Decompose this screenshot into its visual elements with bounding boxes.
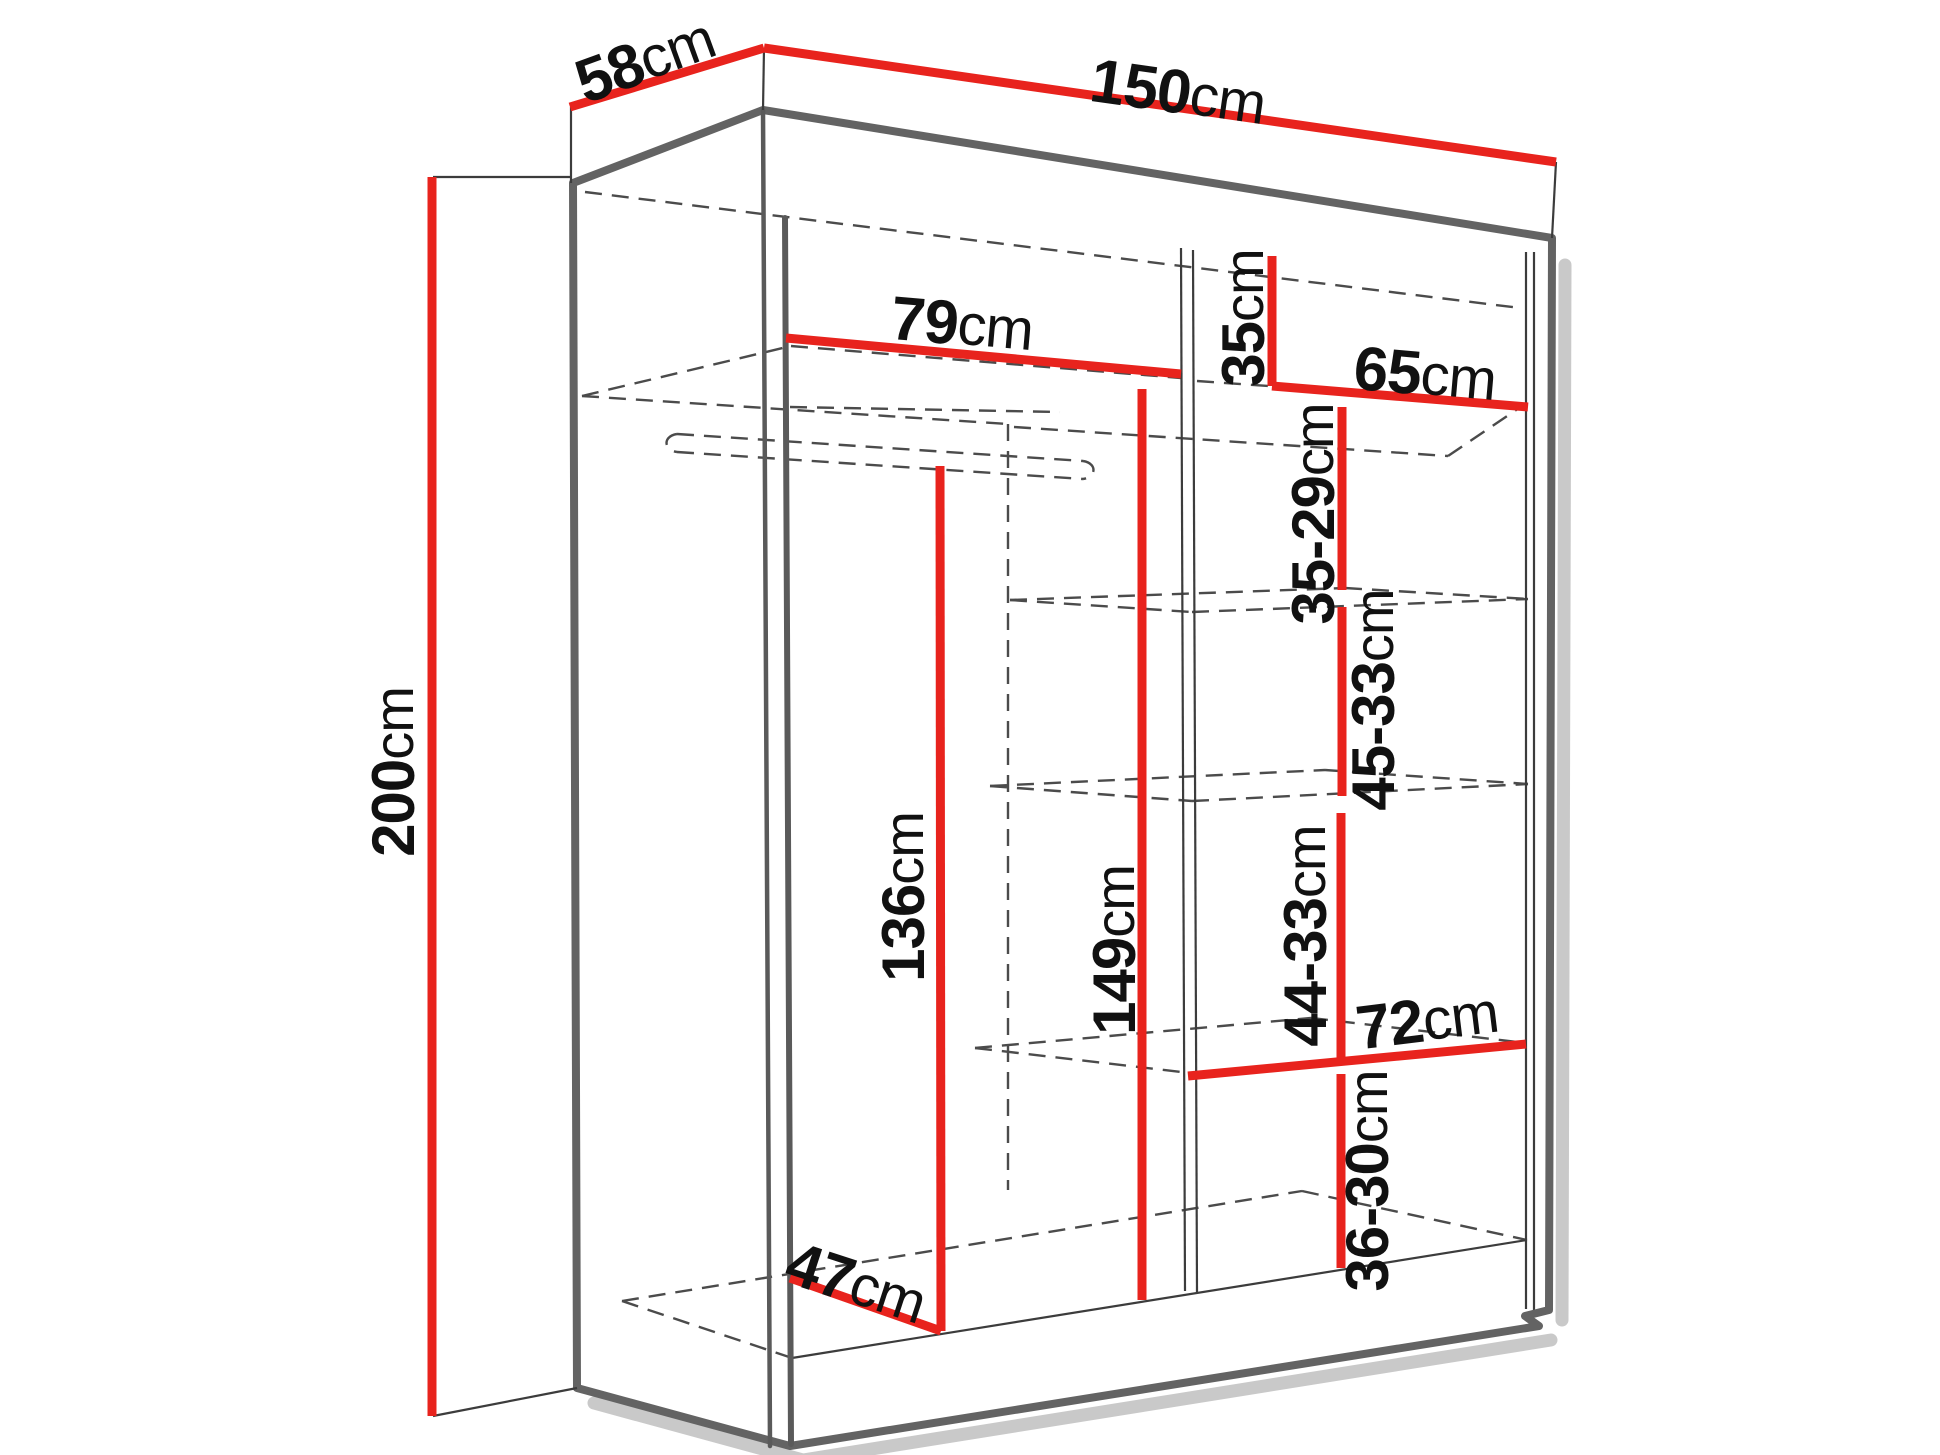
diagram-canvas: 58cm 150cm 200cm 79cm 35cm 65cm 35-29cm … [0,0,1940,1455]
top-gap-label: 35cm [1210,249,1277,386]
left-width-label: 79cm [888,283,1036,364]
depth-label: 58cm [566,3,723,117]
usable-depth-label: 47cm [778,1228,935,1338]
wardrobe-dimension-diagram: 58cm 150cm 200cm 79cm 35cm 65cm 35-29cm … [0,0,1940,1455]
partition-front-edge [1181,248,1185,1291]
gap2-label: 45-33cm [1340,589,1407,810]
front-left-outer-edge [763,110,770,1446]
right-width-label: 65cm [1351,333,1499,414]
interior-height-label: 149cm [1081,865,1148,1035]
hang-height-dimension-line [940,466,941,1331]
cabinet-shadow [594,265,1565,1455]
top-shelf-left [582,346,1181,424]
width-label: 150cm [1086,46,1270,139]
partition-front-edge-2 [1193,250,1197,1292]
shelf-1 [1010,588,1528,612]
gap3-label: 44-33cm [1272,825,1339,1046]
height-label: 200cm [360,687,427,857]
gap1-label: 35-29cm [1280,403,1347,624]
gap4-label: 36-30cm [1334,1070,1401,1291]
interior-edges [792,248,1534,1358]
shelf-2 [990,770,1528,801]
hang-height-label: 136cm [870,812,937,982]
hanging-rail [667,434,1094,479]
